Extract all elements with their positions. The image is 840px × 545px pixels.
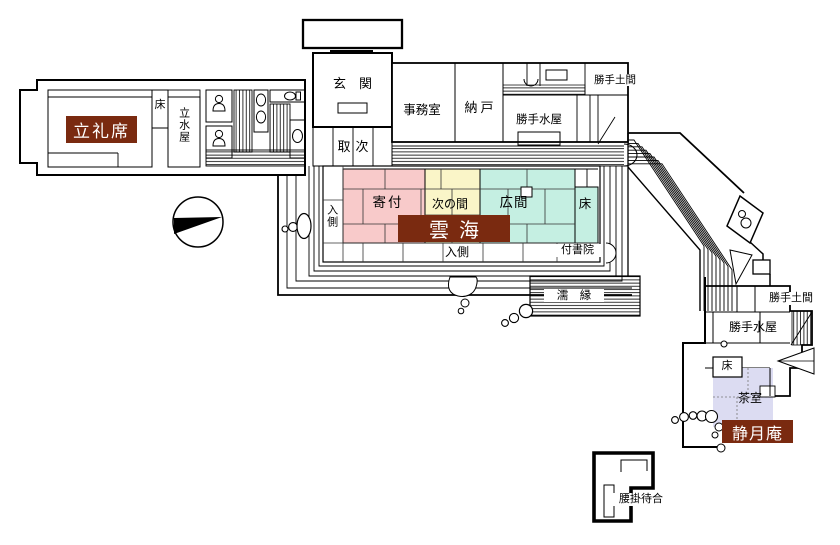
basin-icon	[256, 111, 265, 123]
stepping-stone	[502, 320, 509, 327]
room-yoritsuki	[343, 169, 425, 243]
toko-peg	[721, 341, 727, 347]
room-genkan	[313, 53, 392, 127]
basin-icon	[741, 218, 751, 228]
nure-en-deck	[530, 276, 640, 316]
engawa-hatch-top	[392, 146, 628, 166]
basin-icon	[293, 130, 303, 143]
entrance-step-bar	[330, 50, 373, 54]
floor-plan-drawing	[0, 0, 840, 545]
stepping-stone	[282, 226, 288, 232]
basin-icon	[739, 211, 746, 218]
corridor-hatch	[234, 90, 252, 152]
hearth	[521, 187, 532, 197]
engawa-hatch	[206, 150, 305, 166]
stepping-stone	[458, 308, 464, 314]
toilet-icon	[285, 92, 301, 100]
room-tsugi-no-ma	[425, 169, 480, 243]
stepping-stone	[297, 214, 311, 239]
basin-icon	[256, 94, 265, 106]
corridor-landing	[753, 260, 770, 274]
left-wing	[20, 80, 305, 175]
room-toko-east	[713, 357, 742, 377]
stepping-stone	[519, 304, 532, 317]
office-block	[392, 63, 637, 166]
room-hiroma	[480, 169, 575, 243]
office-outline	[392, 63, 628, 142]
stepping-stone	[509, 313, 518, 322]
corridor-hatch	[270, 104, 290, 152]
porch-outline	[303, 20, 402, 48]
stepping-stone	[289, 223, 298, 232]
room-toko-main	[575, 187, 598, 243]
floor-plan: 立礼席 雲海 静月庵 床 立水屋 玄 関 取次 事務室 納戸 勝手土間 勝手水屋…	[0, 0, 840, 545]
katte-hatch	[503, 85, 585, 95]
stepping-stone	[461, 299, 469, 307]
chashitsu-notch	[760, 386, 775, 397]
